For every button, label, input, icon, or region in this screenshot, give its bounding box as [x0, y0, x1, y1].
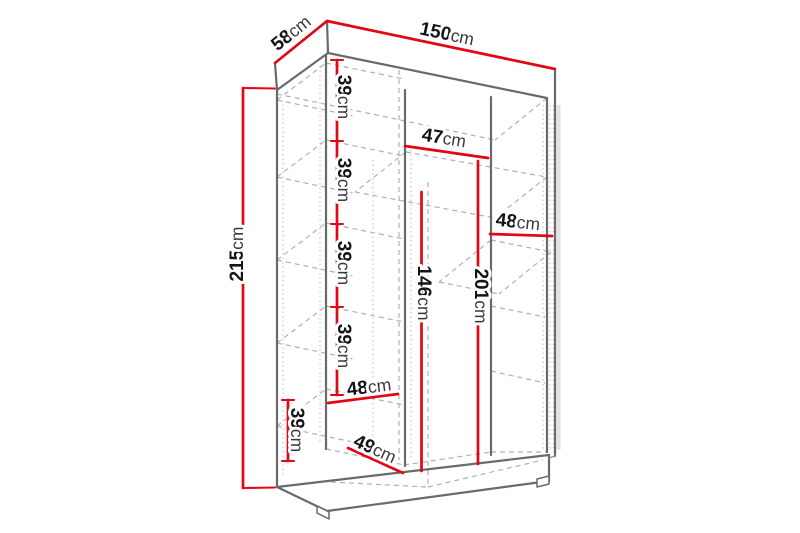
dimension-label-39cm-2: 39cm: [334, 158, 355, 202]
dimension-label-146cm: 146cm: [414, 265, 435, 320]
dimension-label-39cm-4: 39cm: [334, 324, 355, 368]
dimension-label-39cm-1: 39cm: [334, 75, 355, 119]
wardrobe-dimension-diagram: 58cm 150cm 215cm 39cm 39cm 39cm 39cm 47c…: [0, 0, 800, 533]
dimension-label-215cm: 215cm: [227, 226, 248, 281]
dimension-label-201cm: 201cm: [471, 268, 492, 323]
dimension-label-39cm-3: 39cm: [334, 241, 355, 285]
dimension-label-48cm-right: 48cm: [495, 209, 541, 235]
dim-line-48-right: [490, 234, 552, 236]
right-foot: [537, 476, 549, 487]
dimension-label-39cm-bottom: 39cm: [287, 408, 308, 452]
dimension-label-49cm: 49cm: [350, 430, 399, 467]
dimension-label-47cm: 47cm: [420, 124, 467, 152]
dimension-labels: 58cm 150cm 215cm 39cm 39cm 39cm 39cm 47c…: [227, 11, 542, 468]
diagram-canvas: 58cm 150cm 215cm 39cm 39cm 39cm 39cm 47c…: [0, 0, 800, 533]
